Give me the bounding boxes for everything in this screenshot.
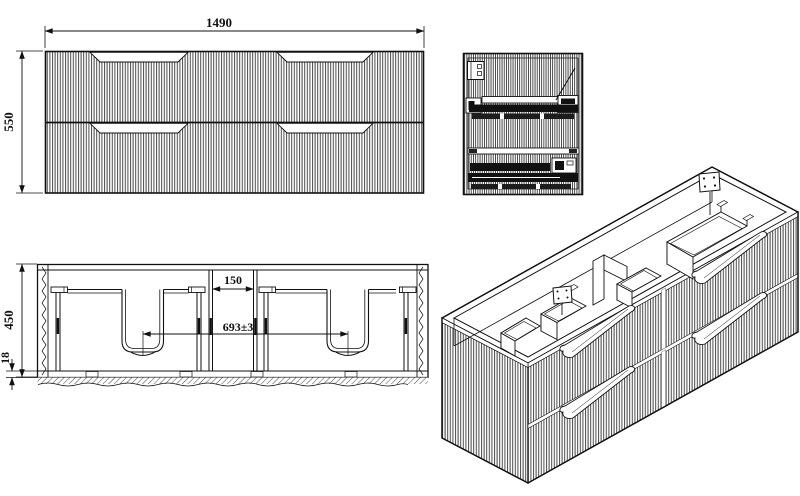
dim-center-gap-label: 150 bbox=[224, 273, 242, 287]
dim-depth-label: 450 bbox=[1, 310, 16, 330]
isometric-view bbox=[442, 167, 798, 483]
dim-drain-spacing-label: 693±3 bbox=[223, 320, 254, 334]
section-view: 450 18 bbox=[0, 264, 428, 390]
handle-recess-top-right bbox=[277, 52, 373, 62]
dim-bottom-thickness-label: 18 bbox=[0, 352, 12, 364]
handle-recess-top-left bbox=[90, 52, 188, 62]
front-width-dimension: 1490 bbox=[45, 15, 424, 48]
wall-bracket-side bbox=[468, 62, 485, 80]
dim-front-width-label: 1490 bbox=[206, 15, 232, 30]
dim-front-height-label: 550 bbox=[1, 112, 16, 132]
technical-drawing-sheet: 1490 550 bbox=[0, 0, 800, 496]
bottom-thickness-dimension: 18 bbox=[0, 352, 37, 390]
iso-column-gap-upper bbox=[662, 288, 666, 350]
front-height-dimension: 550 bbox=[1, 51, 43, 193]
iso-column-gap-lower bbox=[662, 350, 666, 409]
handle-recess-mid-left bbox=[90, 123, 188, 133]
front-view: 1490 550 bbox=[1, 15, 424, 193]
side-view bbox=[464, 54, 583, 195]
handle-recess-mid-right bbox=[277, 123, 373, 133]
